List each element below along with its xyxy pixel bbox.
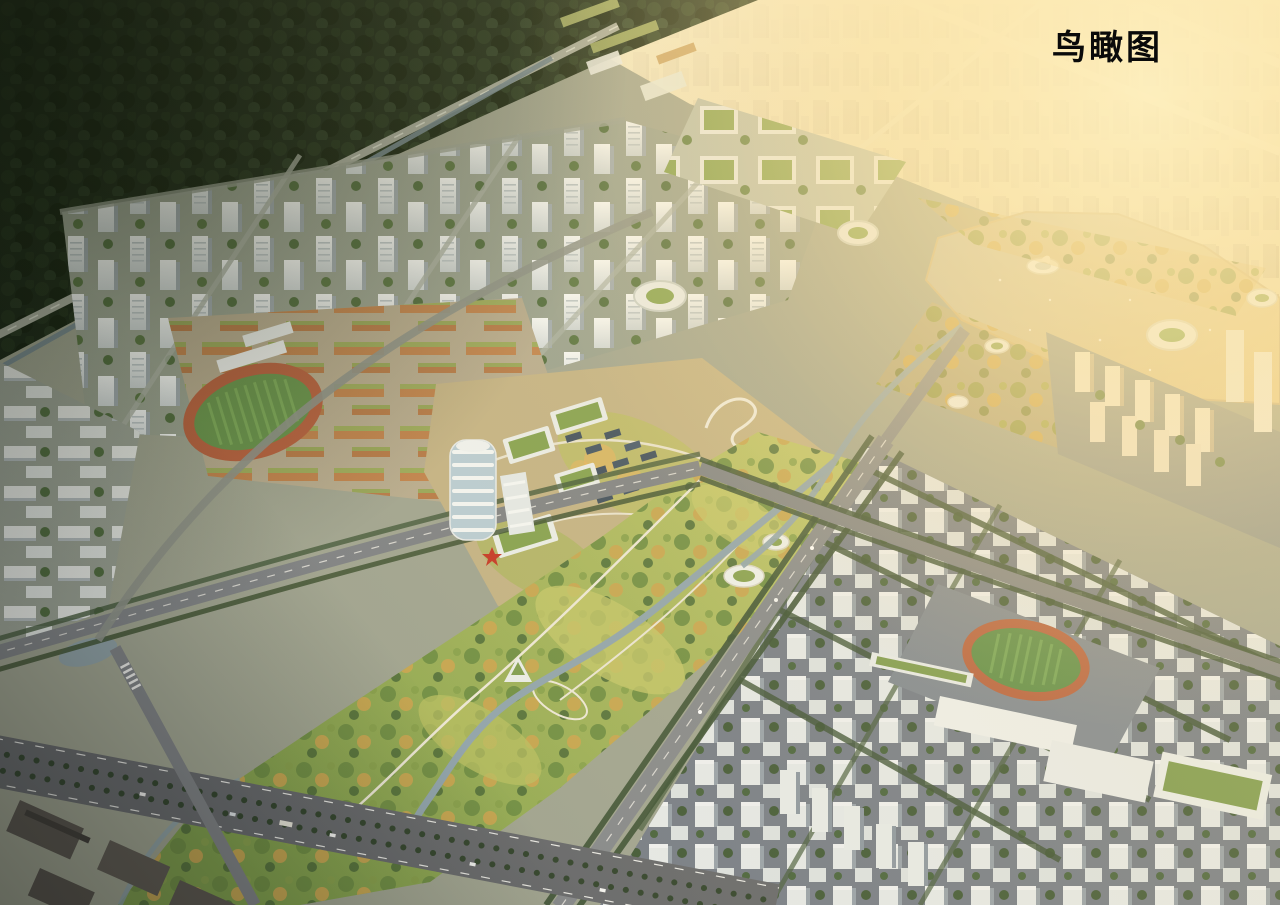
caption-label: 鸟瞰图 (1052, 31, 1163, 65)
atmosphere (0, 0, 1280, 905)
birdseye-rendering: 鸟瞰图 (0, 0, 1280, 905)
